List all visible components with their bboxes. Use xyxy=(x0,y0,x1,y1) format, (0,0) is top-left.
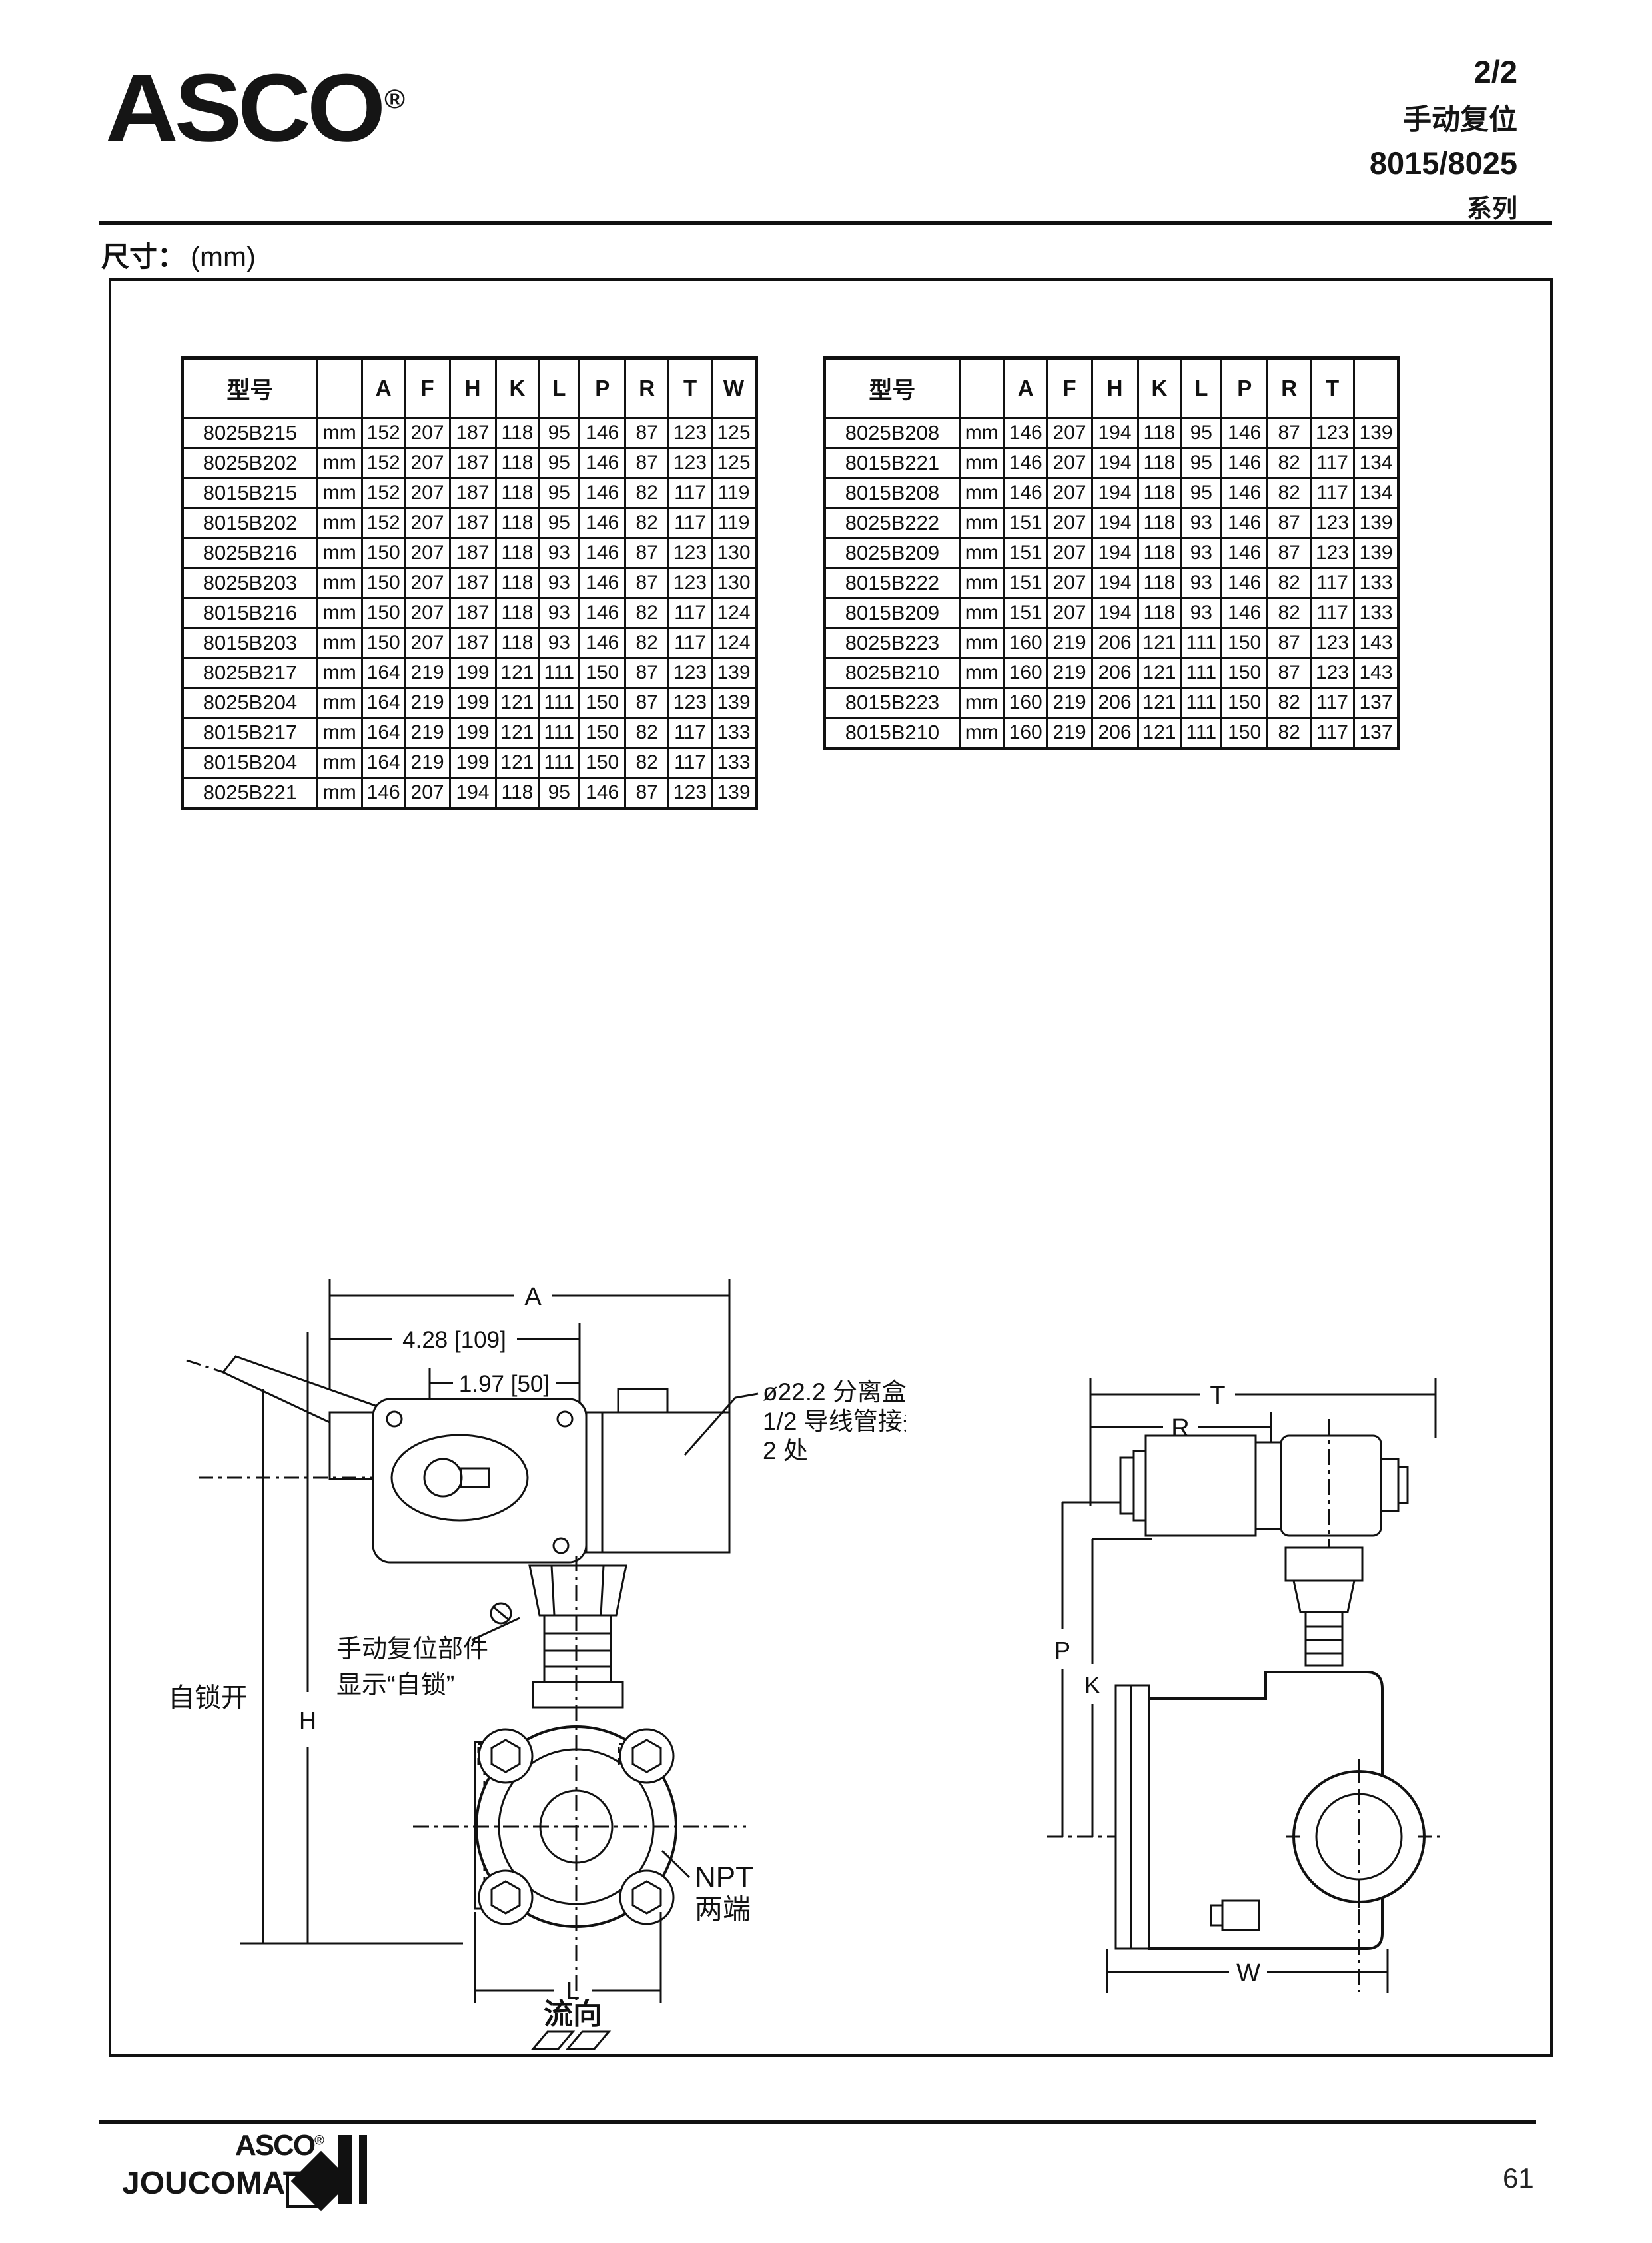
table-row: 8015B210mm16021920612111115082117137 xyxy=(825,718,1399,749)
table-row: 8025B210mm16021920612111115087123143 xyxy=(825,658,1399,688)
table-cell: 118 xyxy=(1138,538,1181,568)
table-cell: 207 xyxy=(405,778,450,809)
table-cell: 146 xyxy=(1222,568,1268,598)
table-cell: mm xyxy=(317,688,362,718)
table-header-cell xyxy=(317,358,362,418)
table-cell: mm xyxy=(959,718,1004,749)
table-cell: 207 xyxy=(405,448,450,478)
table-cell: 8015B202 xyxy=(183,508,318,538)
table-cell: 95 xyxy=(539,418,580,448)
table-header-cell: F xyxy=(1047,358,1092,418)
table-cell: 139 xyxy=(1354,508,1398,538)
table-cell: 133 xyxy=(1354,598,1398,628)
table-cell: 8025B210 xyxy=(825,658,960,688)
table-cell: 117 xyxy=(669,718,712,748)
table-cell: 187 xyxy=(450,568,496,598)
table-cell: 123 xyxy=(669,538,712,568)
table-cell: 150 xyxy=(1222,628,1268,658)
table-cell: 8015B209 xyxy=(825,598,960,628)
table-row: 8015B223mm16021920612111115082117137 xyxy=(825,688,1399,718)
table-cell: 146 xyxy=(580,538,625,568)
conduit-note-line1: ø22.2 分离盒适用于 xyxy=(763,1378,906,1406)
table-cell: 164 xyxy=(362,748,405,778)
table-header-cell: K xyxy=(496,358,539,418)
table-row: 8025B208mm1462071941189514687123139 xyxy=(825,418,1399,448)
table-cell: 143 xyxy=(1354,658,1398,688)
table-header-cell: T xyxy=(669,358,712,418)
table-cell: 123 xyxy=(669,568,712,598)
table-cell: 118 xyxy=(496,508,539,538)
table-row: 8025B209mm1512071941189314687123139 xyxy=(825,538,1399,568)
table-cell: 150 xyxy=(1222,718,1268,749)
table-cell: 146 xyxy=(580,628,625,658)
table-cell: 93 xyxy=(539,598,580,628)
table-cell: 150 xyxy=(580,748,625,778)
table-cell: 118 xyxy=(496,778,539,809)
table-cell: 152 xyxy=(362,508,405,538)
table-cell: 146 xyxy=(1222,478,1268,508)
table-cell: 219 xyxy=(405,718,450,748)
table-cell: 93 xyxy=(1181,598,1222,628)
table-cell: mm xyxy=(959,538,1004,568)
npt-note-line1: NPT xyxy=(695,1861,753,1893)
table-cell: 207 xyxy=(1047,598,1092,628)
table-cell: 206 xyxy=(1092,658,1138,688)
header-divider xyxy=(99,221,1552,225)
table-cell: 87 xyxy=(625,448,669,478)
table-cell: 123 xyxy=(1311,508,1354,538)
table-cell: 123 xyxy=(1311,658,1354,688)
table-cell: 150 xyxy=(362,628,405,658)
table-cell: 134 xyxy=(1354,448,1398,478)
table-cell: 151 xyxy=(1004,598,1047,628)
table-cell: 82 xyxy=(1268,448,1311,478)
table-cell: 118 xyxy=(1138,598,1181,628)
table-cell: 118 xyxy=(496,478,539,508)
table-cell: 187 xyxy=(450,508,496,538)
table-cell: 117 xyxy=(1311,478,1354,508)
table-cell: 207 xyxy=(405,418,450,448)
table-row: 8015B222mm1512071941189314682117133 xyxy=(825,568,1399,598)
table-cell: 87 xyxy=(1268,418,1311,448)
table-cell: 82 xyxy=(625,508,669,538)
table-cell: 146 xyxy=(580,778,625,809)
table-cell: 194 xyxy=(1092,568,1138,598)
table-cell: 95 xyxy=(539,778,580,809)
table-cell: 133 xyxy=(711,748,756,778)
lever-pivot-block xyxy=(330,1412,373,1479)
catalog-page: ASCO® 2/2 手动复位 8015/8025 系列 尺寸：(mm) 型号AF… xyxy=(0,0,1652,2243)
table-cell: 194 xyxy=(1092,478,1138,508)
dimension-table-left: 型号AFHKLPRTW8025B215mm1522071871189514687… xyxy=(181,356,758,810)
table-cell: 187 xyxy=(450,478,496,508)
dimensions-section-label: 尺寸：(mm) xyxy=(101,234,256,275)
table-cell: 139 xyxy=(1354,538,1398,568)
reset-indicator-screw xyxy=(472,1603,520,1640)
table-row: 8025B203mm1502071871189314687123130 xyxy=(183,568,757,598)
table-cell: 199 xyxy=(450,688,496,718)
table-cell: 134 xyxy=(1354,478,1398,508)
table-cell: 133 xyxy=(711,718,756,748)
dim-428-label: 4.28 [109] xyxy=(402,1327,506,1353)
table-cell: 152 xyxy=(362,418,405,448)
table-header-row: 型号AFHKLPRTW xyxy=(183,358,757,418)
table-cell: 111 xyxy=(539,658,580,688)
table-row: 8025B223mm16021920612111115087123143 xyxy=(825,628,1399,658)
table-row: 8015B204mm16421919912111115082117133 xyxy=(183,748,757,778)
table-cell: 146 xyxy=(1222,508,1268,538)
table-cell: mm xyxy=(317,628,362,658)
table-cell: 143 xyxy=(1354,628,1398,658)
table-cell: 139 xyxy=(711,658,756,688)
table-cell: 117 xyxy=(1311,568,1354,598)
table-cell: 194 xyxy=(1092,508,1138,538)
table-cell: 118 xyxy=(496,598,539,628)
table-cell: 118 xyxy=(1138,478,1181,508)
footer-logo-bar2-icon xyxy=(359,2135,367,2204)
table-cell: 87 xyxy=(1268,658,1311,688)
table-cell: 146 xyxy=(580,448,625,478)
table-cell: 187 xyxy=(450,598,496,628)
dim-a-label: A xyxy=(524,1283,542,1311)
table-cell: mm xyxy=(959,508,1004,538)
dim-k-label: K xyxy=(1084,1671,1100,1699)
dim-r-label: R xyxy=(1171,1414,1189,1442)
table-row: 8015B203mm1502071871189314682117124 xyxy=(183,628,757,658)
table-cell: 121 xyxy=(1138,628,1181,658)
table-cell: 8025B202 xyxy=(183,448,318,478)
table-cell: 146 xyxy=(580,478,625,508)
table-cell: 93 xyxy=(1181,568,1222,598)
table-header-cell: P xyxy=(1222,358,1268,418)
table-cell: 199 xyxy=(450,748,496,778)
table-cell: 111 xyxy=(539,718,580,748)
table-cell: 130 xyxy=(711,538,756,568)
table-cell: 93 xyxy=(1181,508,1222,538)
table-cell: 160 xyxy=(1004,628,1047,658)
table-cell: 8015B221 xyxy=(825,448,960,478)
table-row: 8015B209mm1512071941189314682117133 xyxy=(825,598,1399,628)
table-cell: 146 xyxy=(580,418,625,448)
table-cell: mm xyxy=(959,418,1004,448)
table-cell: 87 xyxy=(625,418,669,448)
side-view-drawing: T R P K W xyxy=(966,1299,1485,2032)
table-cell: 82 xyxy=(1268,688,1311,718)
table-cell: 8015B223 xyxy=(825,688,960,718)
table-cell: mm xyxy=(317,718,362,748)
table-cell: 117 xyxy=(1311,718,1354,749)
table-cell: 146 xyxy=(1004,478,1047,508)
table-cell: 146 xyxy=(1222,448,1268,478)
table-cell: mm xyxy=(317,448,362,478)
footer-registered-mark-icon: ® xyxy=(314,2133,323,2148)
table-cell: 111 xyxy=(1181,688,1222,718)
table-cell: 150 xyxy=(580,688,625,718)
flow-arrow-icon xyxy=(533,2032,609,2049)
table-cell: 219 xyxy=(1047,688,1092,718)
table-cell: 207 xyxy=(1047,478,1092,508)
table-cell: 8015B215 xyxy=(183,478,318,508)
page-number: 61 xyxy=(1503,2162,1534,2194)
table-cell: 95 xyxy=(1181,478,1222,508)
table-row: 8015B216mm1502071871189314682117124 xyxy=(183,598,757,628)
table-cell: 95 xyxy=(539,508,580,538)
table-cell: 118 xyxy=(496,448,539,478)
table-cell: 118 xyxy=(496,418,539,448)
reset-note-line1: 手动复位部件 xyxy=(336,1635,488,1663)
table-cell: mm xyxy=(317,778,362,809)
table-cell: 150 xyxy=(362,538,405,568)
table-header-row: 型号AFHKLPRT xyxy=(825,358,1399,418)
table-cell: 117 xyxy=(669,478,712,508)
table-cell: 219 xyxy=(405,748,450,778)
table-cell: 8015B203 xyxy=(183,628,318,658)
table-cell: 160 xyxy=(1004,658,1047,688)
table-row: 8025B204mm16421919912111115087123139 xyxy=(183,688,757,718)
table-header-cell: A xyxy=(362,358,405,418)
table-row: 8025B222mm1512071941189314687123139 xyxy=(825,508,1399,538)
npt-note-line2: 两端 xyxy=(695,1893,751,1925)
table-cell: 150 xyxy=(362,568,405,598)
table-cell: 93 xyxy=(539,628,580,658)
table-cell: 146 xyxy=(1004,448,1047,478)
table-cell: mm xyxy=(317,568,362,598)
dim-w-label: W xyxy=(1236,1959,1260,1987)
table-cell: 219 xyxy=(1047,658,1092,688)
header-function-code: 2/2 xyxy=(1474,53,1517,90)
table-cell: 111 xyxy=(539,688,580,718)
table-cell: 207 xyxy=(405,538,450,568)
table-cell: 219 xyxy=(1047,718,1092,749)
dim-p-label: P xyxy=(1054,1637,1070,1664)
table-cell: 151 xyxy=(1004,508,1047,538)
table-cell: 133 xyxy=(1354,568,1398,598)
table-cell: 8025B203 xyxy=(183,568,318,598)
footer-logo-bar-icon xyxy=(338,2135,352,2204)
table-cell: 146 xyxy=(1222,598,1268,628)
table-header-cell: L xyxy=(539,358,580,418)
table-header-cell: W xyxy=(711,358,756,418)
table-cell: 8015B208 xyxy=(825,478,960,508)
table-cell: 194 xyxy=(1092,418,1138,448)
table-cell: 150 xyxy=(580,658,625,688)
table-cell: 8015B216 xyxy=(183,598,318,628)
table-row: 8025B215mm1522071871189514687123125 xyxy=(183,418,757,448)
table-cell: 123 xyxy=(1311,418,1354,448)
table-cell: 121 xyxy=(1138,718,1181,749)
table-header-cell: P xyxy=(580,358,625,418)
table-cell: 8015B222 xyxy=(825,568,960,598)
table-cell: 194 xyxy=(1092,598,1138,628)
table-cell: 111 xyxy=(1181,718,1222,749)
table-cell: 117 xyxy=(669,598,712,628)
footer-divider xyxy=(99,2120,1536,2124)
table-cell: 207 xyxy=(1047,418,1092,448)
table-cell: 8025B223 xyxy=(825,628,960,658)
table-cell: 93 xyxy=(1181,538,1222,568)
table-cell: 150 xyxy=(580,718,625,748)
table-cell: 8015B204 xyxy=(183,748,318,778)
table-cell: 117 xyxy=(1311,598,1354,628)
table-header-cell xyxy=(1354,358,1398,418)
asco-logo: ASCO® xyxy=(105,60,405,156)
table-cell: 82 xyxy=(1268,598,1311,628)
dim-t-label: T xyxy=(1210,1382,1225,1410)
table-cell: 207 xyxy=(405,478,450,508)
table-cell: 95 xyxy=(539,478,580,508)
table-cell: 151 xyxy=(1004,538,1047,568)
table-cell: 118 xyxy=(1138,508,1181,538)
dimension-table-right: 型号AFHKLPRT8025B208mm14620719411895146871… xyxy=(823,356,1400,750)
valve-body-side xyxy=(1116,1672,1432,1992)
table-header-cell: R xyxy=(1268,358,1311,418)
table-cell: mm xyxy=(317,598,362,628)
table-cell: 95 xyxy=(1181,418,1222,448)
table-cell: 137 xyxy=(1354,718,1398,749)
table-cell: mm xyxy=(959,568,1004,598)
table-cell: 207 xyxy=(405,628,450,658)
table-cell: 87 xyxy=(625,538,669,568)
table-header-cell: H xyxy=(1092,358,1138,418)
table-cell: 124 xyxy=(711,598,756,628)
table-cell: 123 xyxy=(669,448,712,478)
table-cell: 8015B210 xyxy=(825,718,960,749)
table-cell: 111 xyxy=(1181,628,1222,658)
table-cell: 8025B216 xyxy=(183,538,318,568)
table-cell: 139 xyxy=(1354,418,1398,448)
table-cell: 82 xyxy=(625,598,669,628)
table-cell: 123 xyxy=(1311,628,1354,658)
table-cell: 8025B215 xyxy=(183,418,318,448)
table-cell: 146 xyxy=(580,598,625,628)
front-view-drawing: A 4.28 [109] 1.97 [50] ø22.2 分离盒适用于 1/2 … xyxy=(160,1252,906,2052)
table-cell: 194 xyxy=(450,778,496,809)
table-cell: 119 xyxy=(711,478,756,508)
table-cell: 219 xyxy=(405,688,450,718)
table-cell: 118 xyxy=(1138,568,1181,598)
conduit-note-line2: 1/2 导线管接头 xyxy=(763,1408,906,1435)
table-cell: 194 xyxy=(1092,448,1138,478)
table-cell: mm xyxy=(317,658,362,688)
table-cell: 87 xyxy=(625,568,669,598)
table-cell: 117 xyxy=(669,508,712,538)
table-cell: 87 xyxy=(1268,508,1311,538)
table-cell: 207 xyxy=(1047,448,1092,478)
table-cell: 137 xyxy=(1354,688,1398,718)
table-cell: 207 xyxy=(1047,508,1092,538)
table-cell: 8025B217 xyxy=(183,658,318,688)
table-cell: 119 xyxy=(711,508,756,538)
table-cell: 125 xyxy=(711,448,756,478)
table-cell: mm xyxy=(959,598,1004,628)
latch-open-label: 自锁开 xyxy=(168,1683,248,1713)
table-cell: 207 xyxy=(405,598,450,628)
table-cell: mm xyxy=(959,658,1004,688)
table-cell: 152 xyxy=(362,448,405,478)
table-row: 8025B221mm1462071941189514687123139 xyxy=(183,778,757,809)
table-cell: 8025B209 xyxy=(825,538,960,568)
table-cell: 146 xyxy=(580,508,625,538)
table-cell: 87 xyxy=(625,688,669,718)
table-header-cell xyxy=(959,358,1004,418)
flow-direction-label: 流向 xyxy=(544,1998,602,2030)
valve-bonnet xyxy=(530,1566,626,1707)
table-cell: 121 xyxy=(496,688,539,718)
table-cell: 146 xyxy=(580,568,625,598)
table-cell: 164 xyxy=(362,718,405,748)
table-cell: 117 xyxy=(669,628,712,658)
table-header-cell: F xyxy=(405,358,450,418)
table-cell: 160 xyxy=(1004,688,1047,718)
table-cell: 95 xyxy=(539,448,580,478)
table-header-cell: 型号 xyxy=(183,358,318,418)
asco-logo-text: ASCO xyxy=(105,54,382,162)
table-cell: 207 xyxy=(1047,538,1092,568)
table-cell: mm xyxy=(317,508,362,538)
table-cell: 187 xyxy=(450,538,496,568)
table-cell: mm xyxy=(959,478,1004,508)
header-reset-type: 手动复位 xyxy=(1403,97,1517,138)
table-cell: 207 xyxy=(405,508,450,538)
table-cell: 139 xyxy=(711,778,756,809)
dimensions-label-unit: (mm) xyxy=(191,241,256,272)
table-cell: 146 xyxy=(1222,418,1268,448)
conduit-note-line3: 2 处 xyxy=(763,1437,808,1464)
table-cell: 121 xyxy=(496,658,539,688)
table-cell: 150 xyxy=(362,598,405,628)
header-series-label: 系列 xyxy=(1467,188,1517,224)
table-cell: 82 xyxy=(1268,718,1311,749)
table-cell: 123 xyxy=(669,778,712,809)
table-cell: 124 xyxy=(711,628,756,658)
table-cell: 207 xyxy=(405,568,450,598)
table-cell: 206 xyxy=(1092,688,1138,718)
table-cell: 150 xyxy=(1222,658,1268,688)
table-cell: 82 xyxy=(1268,478,1311,508)
table-cell: mm xyxy=(959,448,1004,478)
table-header-cell: L xyxy=(1181,358,1222,418)
table-cell: mm xyxy=(959,628,1004,658)
table-cell: 8025B204 xyxy=(183,688,318,718)
table-row: 8025B202mm1522071871189514687123125 xyxy=(183,448,757,478)
table-cell: 121 xyxy=(1138,688,1181,718)
table-cell: 152 xyxy=(362,478,405,508)
table-cell: 8025B221 xyxy=(183,778,318,809)
table-cell: 130 xyxy=(711,568,756,598)
table-cell: 139 xyxy=(711,688,756,718)
table-cell: mm xyxy=(317,418,362,448)
table-cell: 93 xyxy=(539,538,580,568)
table-cell: 93 xyxy=(539,568,580,598)
table-cell: 8025B208 xyxy=(825,418,960,448)
table-cell: 206 xyxy=(1092,718,1138,749)
table-header-cell: R xyxy=(625,358,669,418)
table-cell: 146 xyxy=(362,778,405,809)
table-cell: 118 xyxy=(496,568,539,598)
table-cell: 82 xyxy=(1268,568,1311,598)
table-cell: 87 xyxy=(625,778,669,809)
dimensions-label-cn: 尺寸： xyxy=(101,242,185,273)
table-cell: 207 xyxy=(1047,568,1092,598)
table-header-cell: T xyxy=(1311,358,1354,418)
solenoid-housing xyxy=(199,1399,586,1562)
table-cell: 187 xyxy=(450,448,496,478)
table-cell: 206 xyxy=(1092,628,1138,658)
table-cell: 151 xyxy=(1004,568,1047,598)
table-cell: 150 xyxy=(1222,688,1268,718)
table-row: 8015B202mm1522071871189514682117119 xyxy=(183,508,757,538)
table-row: 8015B208mm1462071941189514682117134 xyxy=(825,478,1399,508)
